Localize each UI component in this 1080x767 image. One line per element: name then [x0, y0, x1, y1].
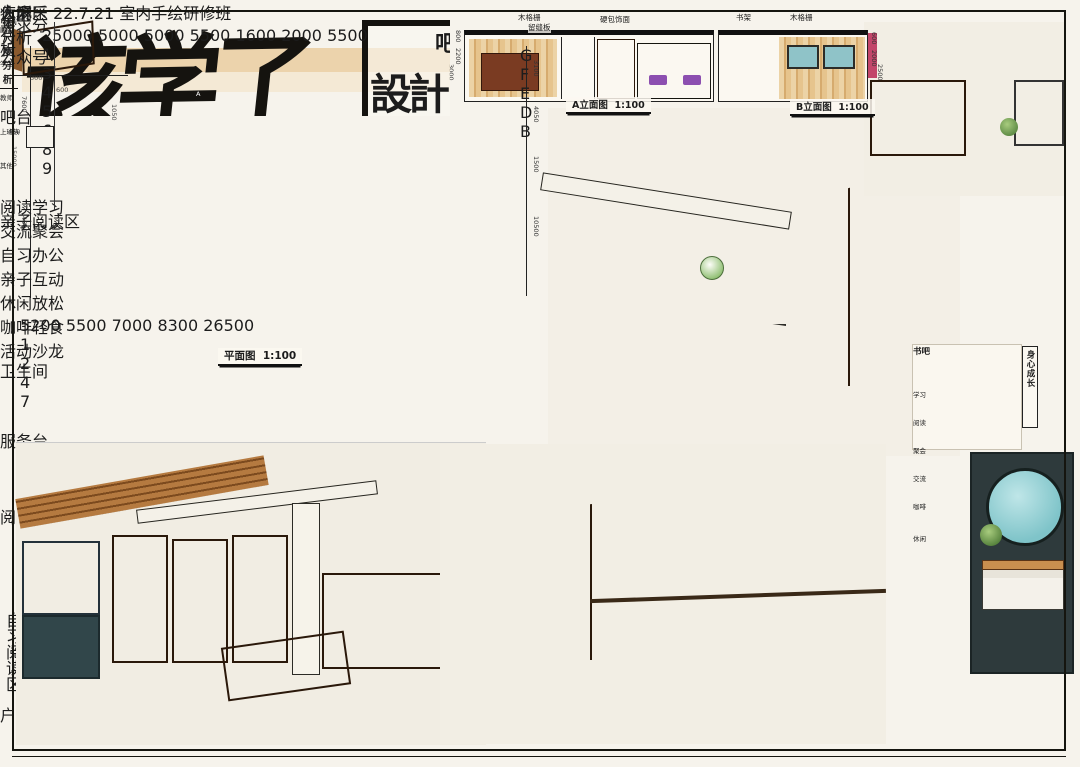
- need-box: 休闲放松: [0, 290, 64, 314]
- need-box: 自习办公: [0, 242, 64, 266]
- signature-studio: 室内手绘研修班: [119, 4, 231, 23]
- grid-bubble: 4: [20, 373, 525, 392]
- group-circle: 教师: [0, 92, 34, 126]
- perspective-cafe-corner: [970, 452, 1074, 674]
- floor: [972, 612, 1072, 672]
- grid-bubble: 4: [42, 83, 512, 102]
- connector-trunk: [54, 22, 55, 210]
- dim: 600: [870, 32, 878, 44]
- dark-wall-panel: [22, 615, 100, 679]
- grid-top-dims: 25000 5000 5000 5500 1600 2000 5500 1 3 …: [42, 26, 512, 178]
- chair: [440, 603, 456, 623]
- need-box: 交流聚会: [0, 218, 64, 242]
- needs-header: 需求分析: [0, 12, 48, 24]
- bubble-item: 阅读: [913, 417, 941, 445]
- display-shelf: [597, 39, 635, 99]
- leader-label: 木格栅: [790, 12, 813, 23]
- leader-label: 留缝板: [528, 22, 551, 33]
- island-counter: [982, 564, 1064, 610]
- tall-bookshelf: [112, 535, 168, 663]
- need-box: 咖啡轻食: [0, 314, 64, 338]
- view-marker-a-label: A: [196, 90, 200, 98]
- plan-caption: 平面图 1:100: [218, 348, 302, 366]
- flower-vase-cluster: [700, 256, 724, 280]
- elevation-b-drawing: [718, 30, 868, 102]
- bubble-item: 咖啡: [913, 501, 945, 533]
- bubble-item: 学习: [913, 389, 941, 417]
- wood-floor: [440, 696, 886, 744]
- corner-window: [1014, 80, 1064, 146]
- presentation-board: 800 2200 3000 木格栅 留缝板 硬包饰面 A立面图 1:100 60…: [0, 0, 1080, 767]
- floor: [16, 705, 486, 745]
- elevation-a-caption: A立面图 1:100: [566, 97, 651, 114]
- floor: [864, 170, 1066, 196]
- perspective-reception: [16, 442, 486, 745]
- window-bay: [637, 43, 711, 99]
- elevation-b-caption: B立面图 1:100: [790, 99, 875, 116]
- dim: 1050: [110, 104, 118, 121]
- plant: [1000, 118, 1018, 136]
- bookshelf-back-wall: [870, 80, 966, 156]
- plant: [980, 524, 1002, 546]
- group-circle: 其他: [0, 160, 34, 194]
- bay-table: [649, 75, 667, 85]
- bubble-item: 聚会: [913, 445, 941, 473]
- need-box: 活动沙龙: [0, 338, 64, 362]
- group-circle: 上班族: [0, 126, 34, 160]
- grid-bubble: 3: [42, 64, 512, 83]
- counter-top: [982, 560, 1064, 570]
- tall-bookshelf: [172, 539, 228, 663]
- elevation-b: 600 2000 2500 书架 木格栅: [718, 24, 880, 110]
- bay-table: [683, 75, 701, 85]
- user-needs-analysis: 人群分析 需求分析 顾客 学生 教师 上班族 其他 阅读学习 交流聚会 自习办公…: [0, 0, 64, 362]
- chair: [440, 623, 456, 643]
- grid-bubble: 1: [42, 45, 512, 64]
- window: [823, 45, 855, 69]
- chair: [440, 583, 456, 603]
- leader-label: 硬包饰面: [600, 14, 630, 25]
- dim: 2500: [876, 64, 884, 81]
- green-window: [22, 541, 100, 615]
- perspective-reading-hall: [440, 444, 886, 744]
- white-column: [561, 37, 595, 99]
- bubble-item: 休闲: [913, 533, 945, 565]
- grid-bubble: 6: [42, 121, 512, 140]
- bubble-diagram-caption: 身心成长: [1022, 346, 1038, 428]
- need-box: 亲子互动: [0, 266, 64, 290]
- grid-bubble: 8: [42, 140, 512, 159]
- leader-label: 书架: [736, 12, 751, 23]
- grid-bubble: 7: [20, 392, 525, 411]
- perspective-top-right: [864, 22, 1066, 196]
- group-circle: 学生: [0, 58, 34, 92]
- groups-header: 人群分析: [0, 0, 46, 12]
- window: [787, 45, 819, 69]
- grid-right-dims: G 3100 F 4050 E 1500 D 10500 B: [520, 46, 532, 298]
- bubble-center: 书吧: [913, 345, 957, 389]
- bubble-diagram: 书吧 学习 阅读 聚会 交流 咖啡 休闲: [912, 344, 1022, 450]
- bubble-item: 交流: [913, 473, 941, 501]
- grid-bubble: 9: [42, 159, 512, 178]
